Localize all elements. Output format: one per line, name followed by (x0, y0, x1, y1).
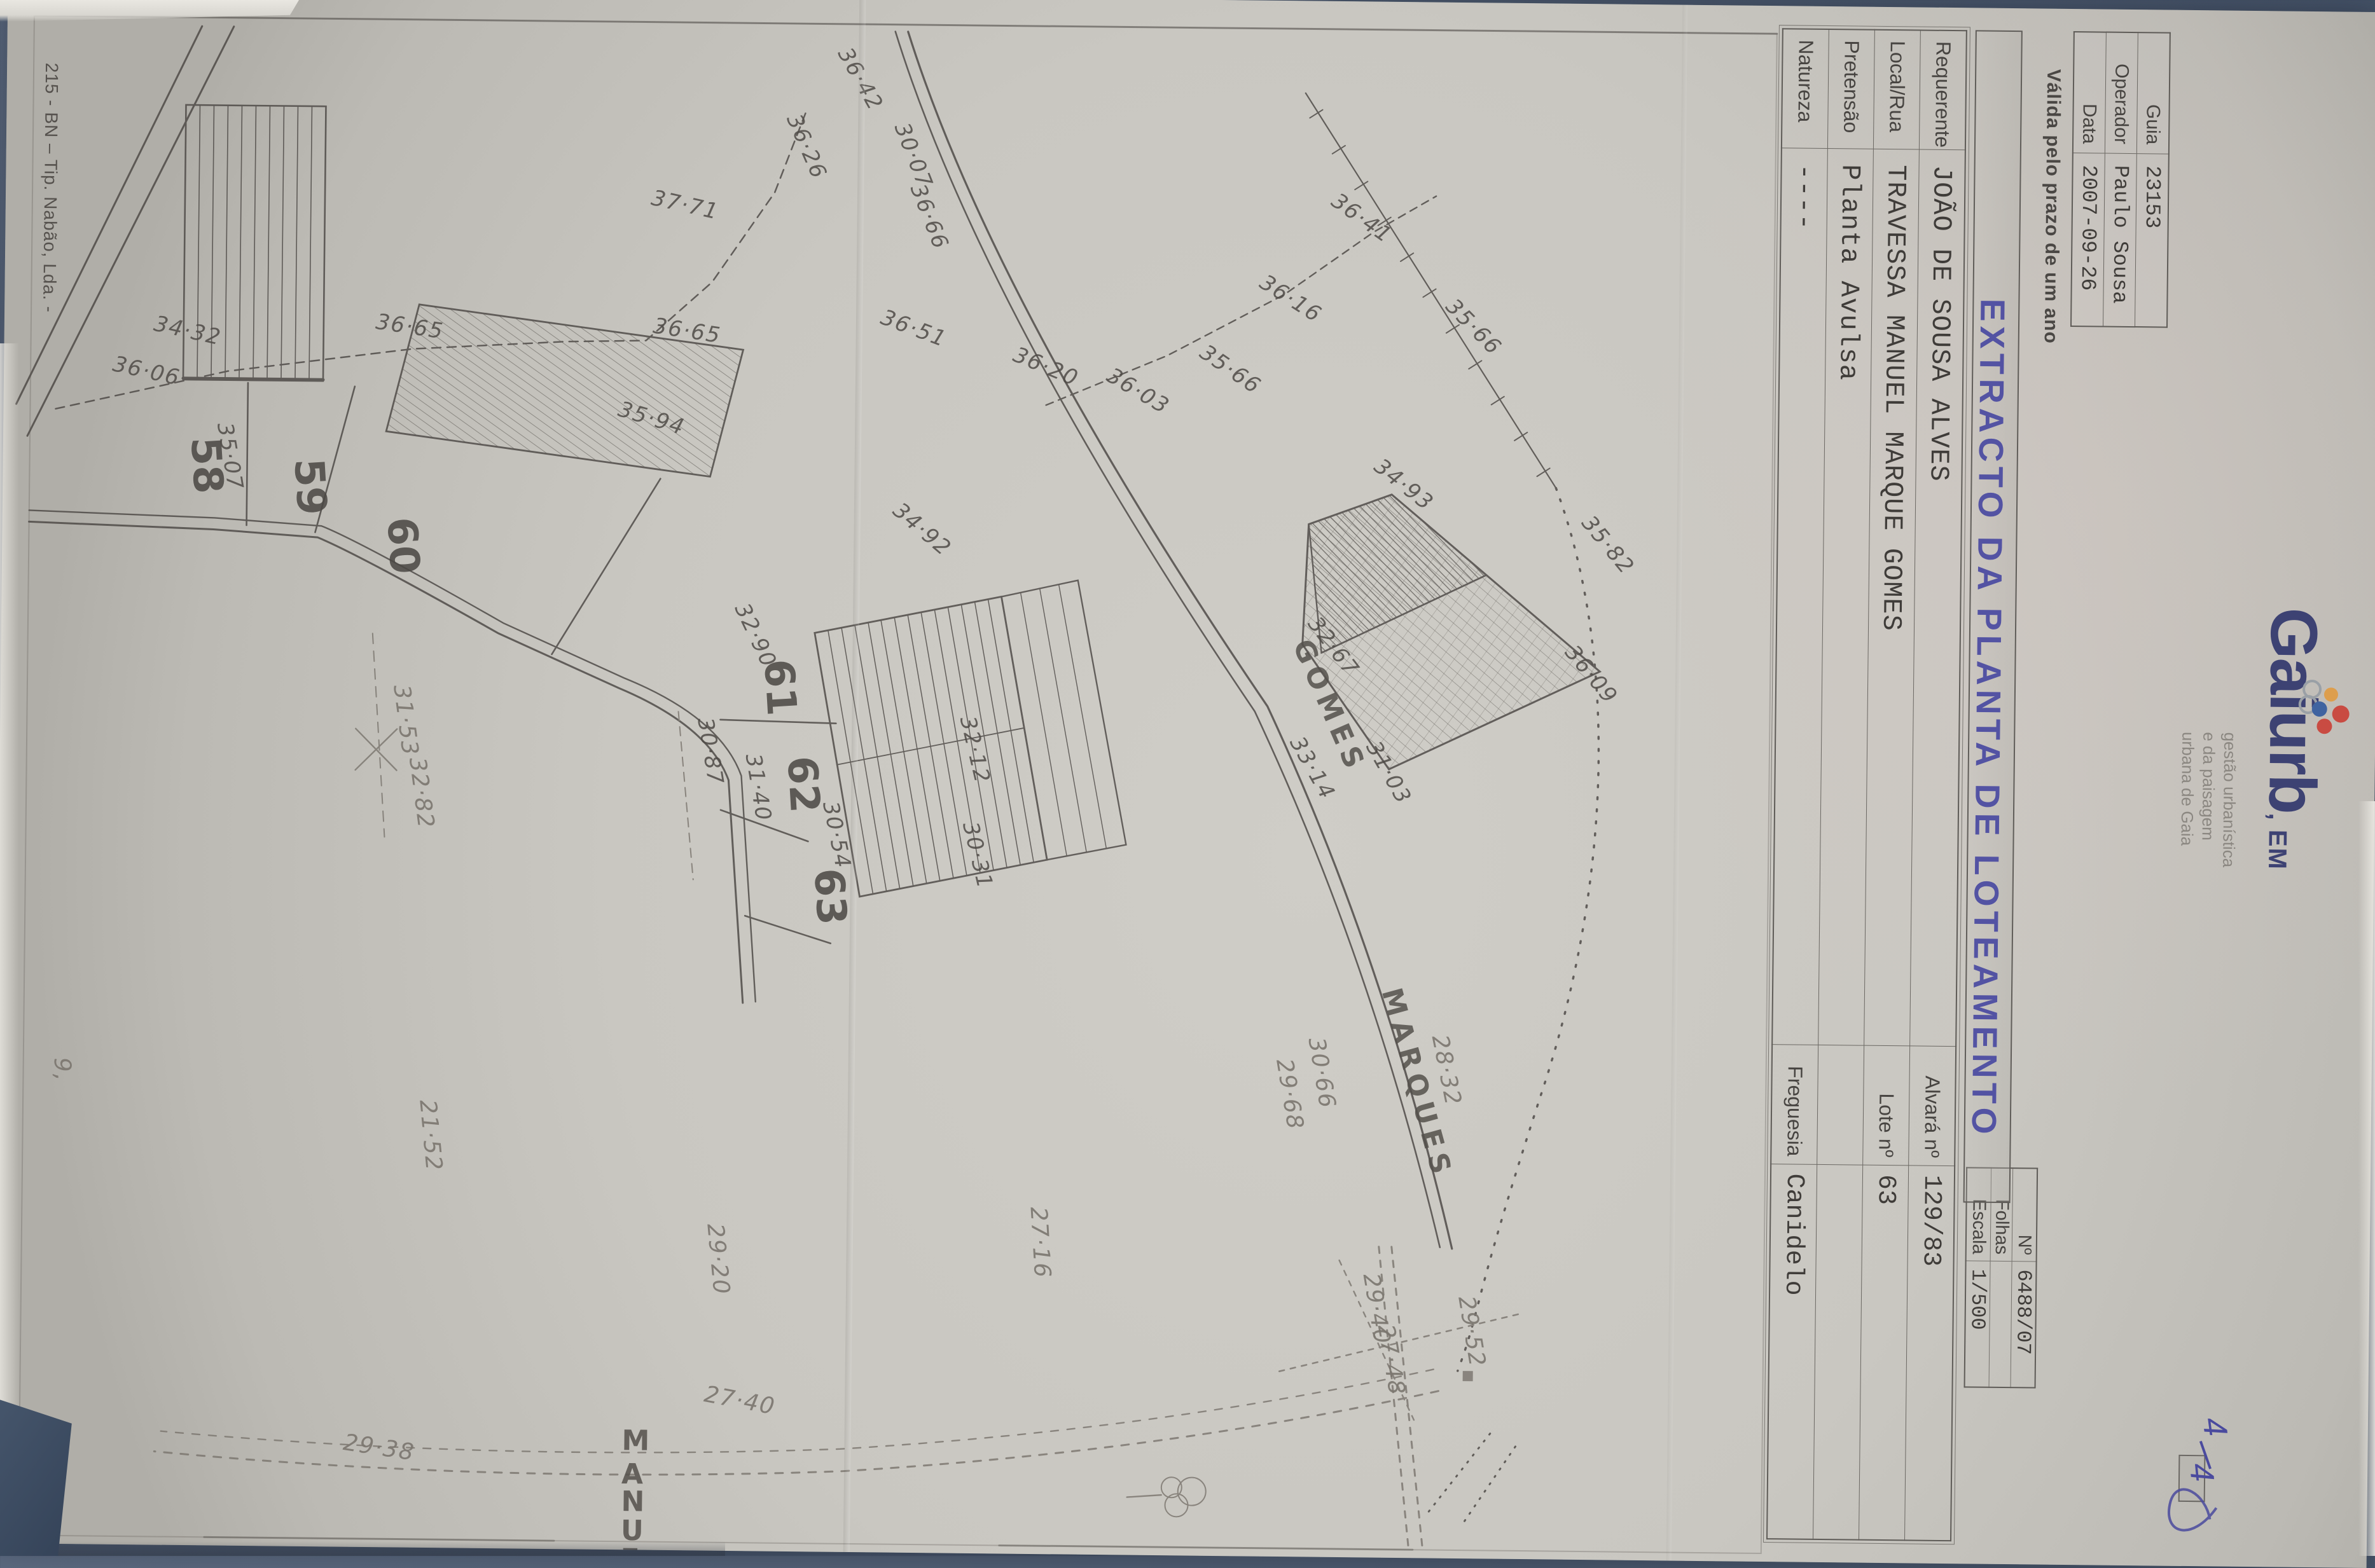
measurement-label: 35·66 (1195, 340, 1266, 399)
measurement-label: 36·03 (1102, 363, 1174, 420)
paper-shadow (57, 1541, 725, 1556)
measurement-label: 36·16 (1255, 270, 1326, 328)
pencil-note-label: 29·68 (1271, 1057, 1308, 1132)
pencil-roads (153, 1234, 1519, 1552)
measurement-label: 36·66 (905, 181, 953, 254)
pencil-note-label: 29·20 (702, 1222, 734, 1296)
measurement-label: 34·32 (151, 311, 223, 350)
printer-imprint: 215 - BN – Tip. Nabão, Lda. - (39, 63, 62, 313)
measurement-label: 35·82 (1576, 511, 1639, 579)
measurement-label: 32·90 (730, 599, 782, 671)
pencil-note-label: 27·40 (702, 1381, 778, 1420)
measurement-label: 34·92 (888, 498, 957, 561)
lot-number-label: 59 (285, 457, 335, 516)
measurement-label: 37·71 (649, 185, 721, 224)
measurement-label: 36·26 (781, 111, 831, 183)
pencil-note-label: 29·52 (1453, 1294, 1490, 1369)
pencil-note-label: 31·53 (388, 683, 423, 757)
pencil-note-label: 21·52 (414, 1099, 447, 1173)
pencil-note-label: 32·82 (404, 756, 439, 830)
lot-number-label: 60 (378, 516, 428, 575)
lot-number-label: 63 (805, 867, 855, 926)
road-inner (24, 510, 761, 1003)
measurement-label: 31·40 (740, 752, 777, 823)
site-plan-map: 58596061626336·0634·3235·0736·6536·6535·… (0, 0, 2375, 1568)
pencil-note-label: 27·48 (1373, 1323, 1410, 1398)
measurement-label: 36·41 (1327, 188, 1397, 249)
paper-edge-highlight (2358, 801, 2375, 1556)
measurement-label: 35·66 (1441, 294, 1507, 361)
document-paper: Guia 23153 Operador Paulo Sousa Data 200… (0, 0, 2375, 1568)
pencil-note-label: 9, (48, 1057, 76, 1083)
measurement-label: 30·87 (692, 716, 728, 787)
measurement-label: 32·12 (955, 713, 995, 786)
pencil-note-label: 29·38 (342, 1429, 417, 1466)
measurement-label: 36·06 (111, 351, 183, 390)
measurement-label: 36·20 (1009, 342, 1082, 392)
paper-edge-highlight (0, 343, 19, 1412)
pencil-note-label: 27·16 (1025, 1206, 1055, 1279)
pencil-note-label: 30·66 (1303, 1036, 1341, 1111)
photo-scene: Guia 23153 Operador Paulo Sousa Data 200… (0, 0, 2375, 1556)
measurement-label: 36·51 (877, 305, 950, 352)
